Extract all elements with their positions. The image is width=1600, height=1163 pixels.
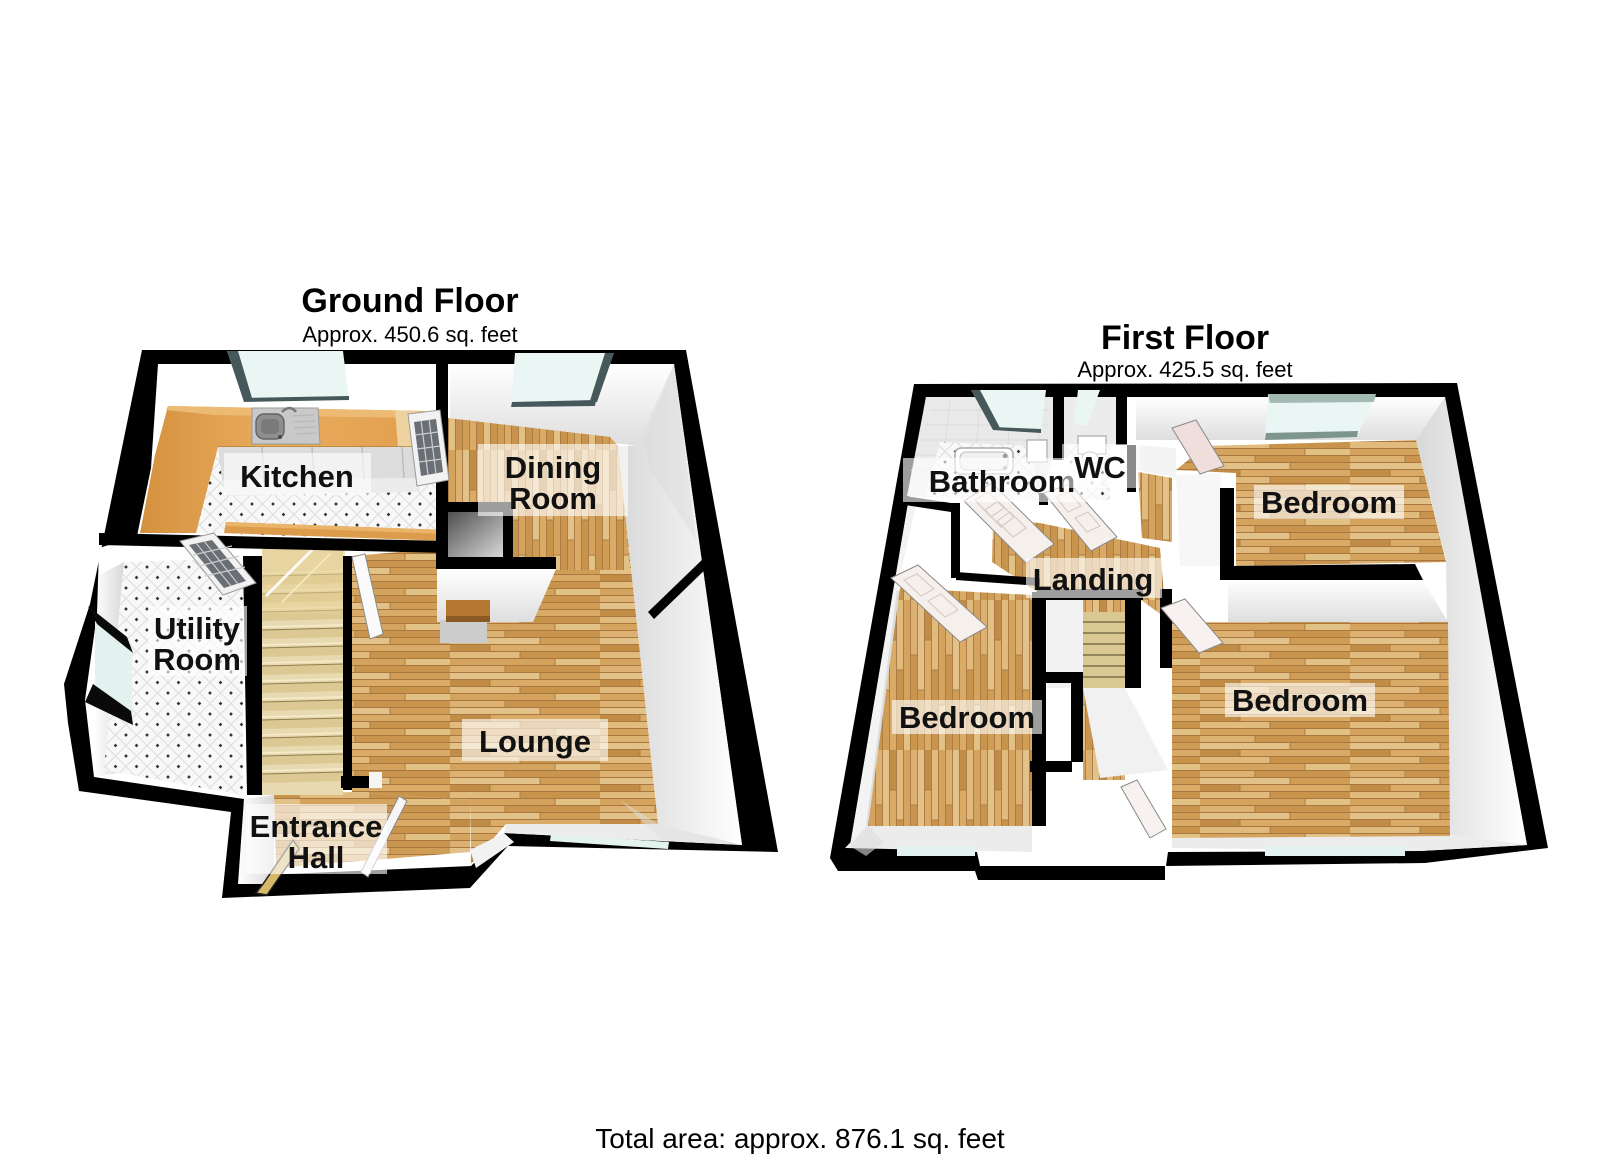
svg-text:Entrance: Entrance <box>250 809 383 844</box>
svg-text:Bedroom: Bedroom <box>899 700 1035 735</box>
svg-text:Lounge: Lounge <box>479 724 591 759</box>
svg-text:Approx. 425.5 sq. feet: Approx. 425.5 sq. feet <box>1077 357 1292 382</box>
svg-text:Ground Floor: Ground Floor <box>301 282 518 320</box>
svg-text:Kitchen: Kitchen <box>240 459 354 494</box>
svg-text:Room: Room <box>153 642 241 677</box>
svg-text:Dining: Dining <box>505 450 601 485</box>
svg-text:Utility: Utility <box>154 611 241 646</box>
svg-text:Bedroom: Bedroom <box>1261 485 1397 520</box>
svg-text:Bedroom: Bedroom <box>1232 683 1368 718</box>
svg-text:Hall: Hall <box>288 840 345 875</box>
svg-text:Approx. 450.6 sq. feet: Approx. 450.6 sq. feet <box>302 322 517 347</box>
svg-text:Total area: approx. 876.1 sq.: Total area: approx. 876.1 sq. feet <box>595 1123 1005 1154</box>
svg-text:First Floor: First Floor <box>1101 319 1269 357</box>
svg-text:Room: Room <box>509 481 597 516</box>
svg-text:Bathroom: Bathroom <box>929 464 1075 499</box>
svg-text:Landing: Landing <box>1033 562 1154 597</box>
svg-text:WC: WC <box>1074 450 1126 485</box>
